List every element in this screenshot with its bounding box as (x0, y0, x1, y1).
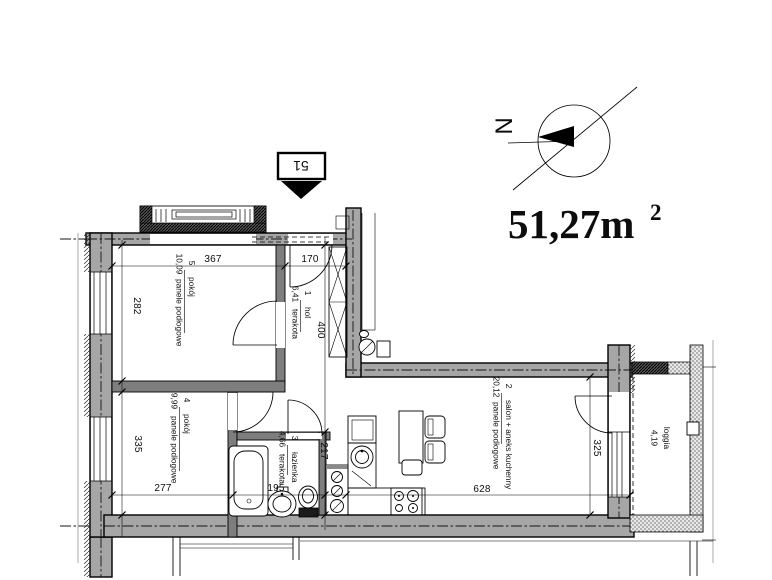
toilet (299, 486, 319, 517)
kitchen-sink (348, 443, 376, 488)
dim-hall-width: 170 (301, 254, 319, 265)
room5-area: 10,09 (175, 254, 185, 275)
north-letter: N (491, 117, 518, 134)
room5-door (233, 301, 277, 345)
room5-name: pokój (187, 277, 197, 297)
doors (233, 237, 612, 434)
hall-area: 6,41 (291, 286, 301, 303)
living-floor: panele podłogowe (492, 402, 502, 470)
area-label: 51,27m 2 (508, 200, 662, 247)
dim-room4-depth: 335 (132, 435, 143, 453)
bathroom-floor: terakota (278, 454, 288, 484)
unit-marker-arrow-icon (281, 181, 322, 199)
room4-number: 4 (182, 398, 192, 403)
living-label: 2 salon + aneks kuchenny 20,12 panele po… (492, 377, 515, 490)
room4-door (233, 392, 273, 432)
dim-bathroom-depth: 217 (318, 442, 329, 460)
living-number: 2 (504, 384, 514, 389)
room5-label: 5 pokój 10,09 panele podłogowe (175, 254, 198, 347)
living-area: 20,12 (492, 377, 502, 398)
loggia-label: loggia 4,19 (650, 427, 673, 450)
dining-table (399, 411, 445, 475)
apartment-area-sup: 2 (650, 200, 662, 225)
kitchen-fixtures (348, 411, 445, 515)
loggia-area: 4,19 (650, 430, 660, 447)
floor-plan-page: 367 170 282 400 335 217 277 195 628 325 … (0, 0, 772, 580)
unit-marker: 51 (278, 153, 325, 199)
living-name: salon + aneks kuchenny (504, 400, 514, 490)
plumbing-shaft (326, 465, 348, 515)
room5-number: 5 (187, 261, 197, 266)
bathroom-area: 4,66 (278, 431, 288, 448)
apartment-area-value: 51,27m (508, 201, 634, 247)
stove (348, 488, 425, 515)
unit-number: 51 (293, 158, 309, 174)
compass-icon: N (491, 87, 637, 190)
dim-room4-width: 277 (154, 483, 172, 494)
hall-number: 1 (303, 291, 313, 296)
kitchen-cabinet (348, 416, 376, 443)
room4-name: pokój (182, 414, 192, 434)
room5-floor: panele podłogowe (175, 279, 185, 347)
dim-hall-depth: 400 (315, 321, 326, 339)
loggia-name: loggia (662, 427, 672, 450)
neighbour-walls-below (84, 537, 713, 577)
bathroom-name: łazienka (290, 452, 300, 483)
room4-label: 4 pokój 9,99 panele podłogowe (170, 393, 193, 484)
bathroom-fixtures (229, 446, 348, 517)
hall-label: 1 hol 6,41 terakota (291, 286, 314, 339)
neighbour-unit-fragment (359, 213, 390, 357)
bathtub (229, 446, 268, 516)
dim-bathroom-width: 195 (267, 483, 285, 494)
loggia-door (575, 396, 612, 433)
hall-floor: terakota (291, 309, 301, 339)
room4-floor: panele podłogowe (170, 416, 180, 484)
bathroom-door (288, 400, 322, 434)
bathroom-number: 3 (290, 436, 300, 441)
dim-living-width: 628 (473, 484, 491, 495)
dim-living-depth: 325 (591, 439, 602, 457)
compass-needle (538, 126, 574, 147)
floor-plan-drawing: 367 170 282 400 335 217 277 195 628 325 … (0, 0, 772, 580)
ventilation-shaft (329, 247, 347, 357)
dim-room5-width: 367 (204, 254, 222, 265)
hall-name: hol (303, 307, 313, 318)
bay-window (140, 206, 266, 232)
dim-room5-depth: 282 (131, 297, 142, 315)
room4-area: 9,99 (170, 393, 180, 410)
